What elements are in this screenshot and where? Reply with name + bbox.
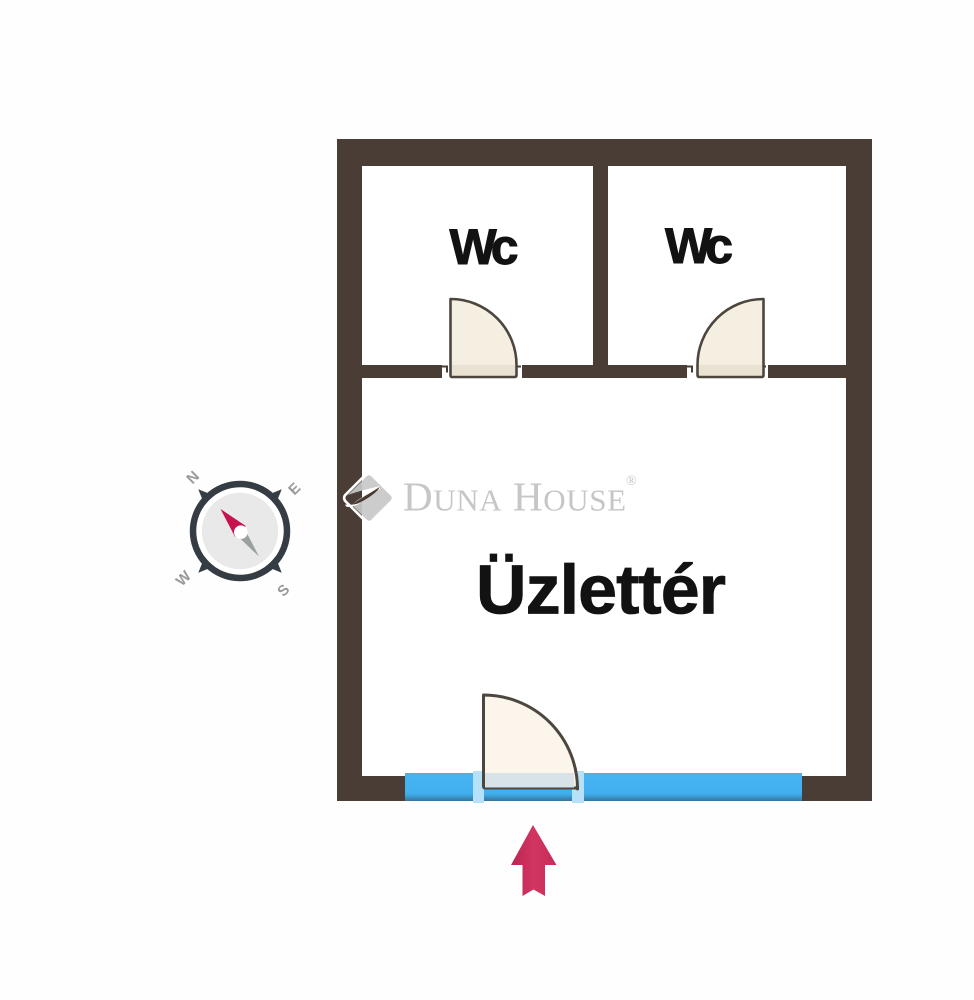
svg-text:Wc: Wc xyxy=(665,218,733,274)
svg-text:Üzlettér: Üzlettér xyxy=(476,551,726,629)
svg-text:®: ® xyxy=(626,474,637,489)
svg-text:Wc: Wc xyxy=(450,219,519,275)
